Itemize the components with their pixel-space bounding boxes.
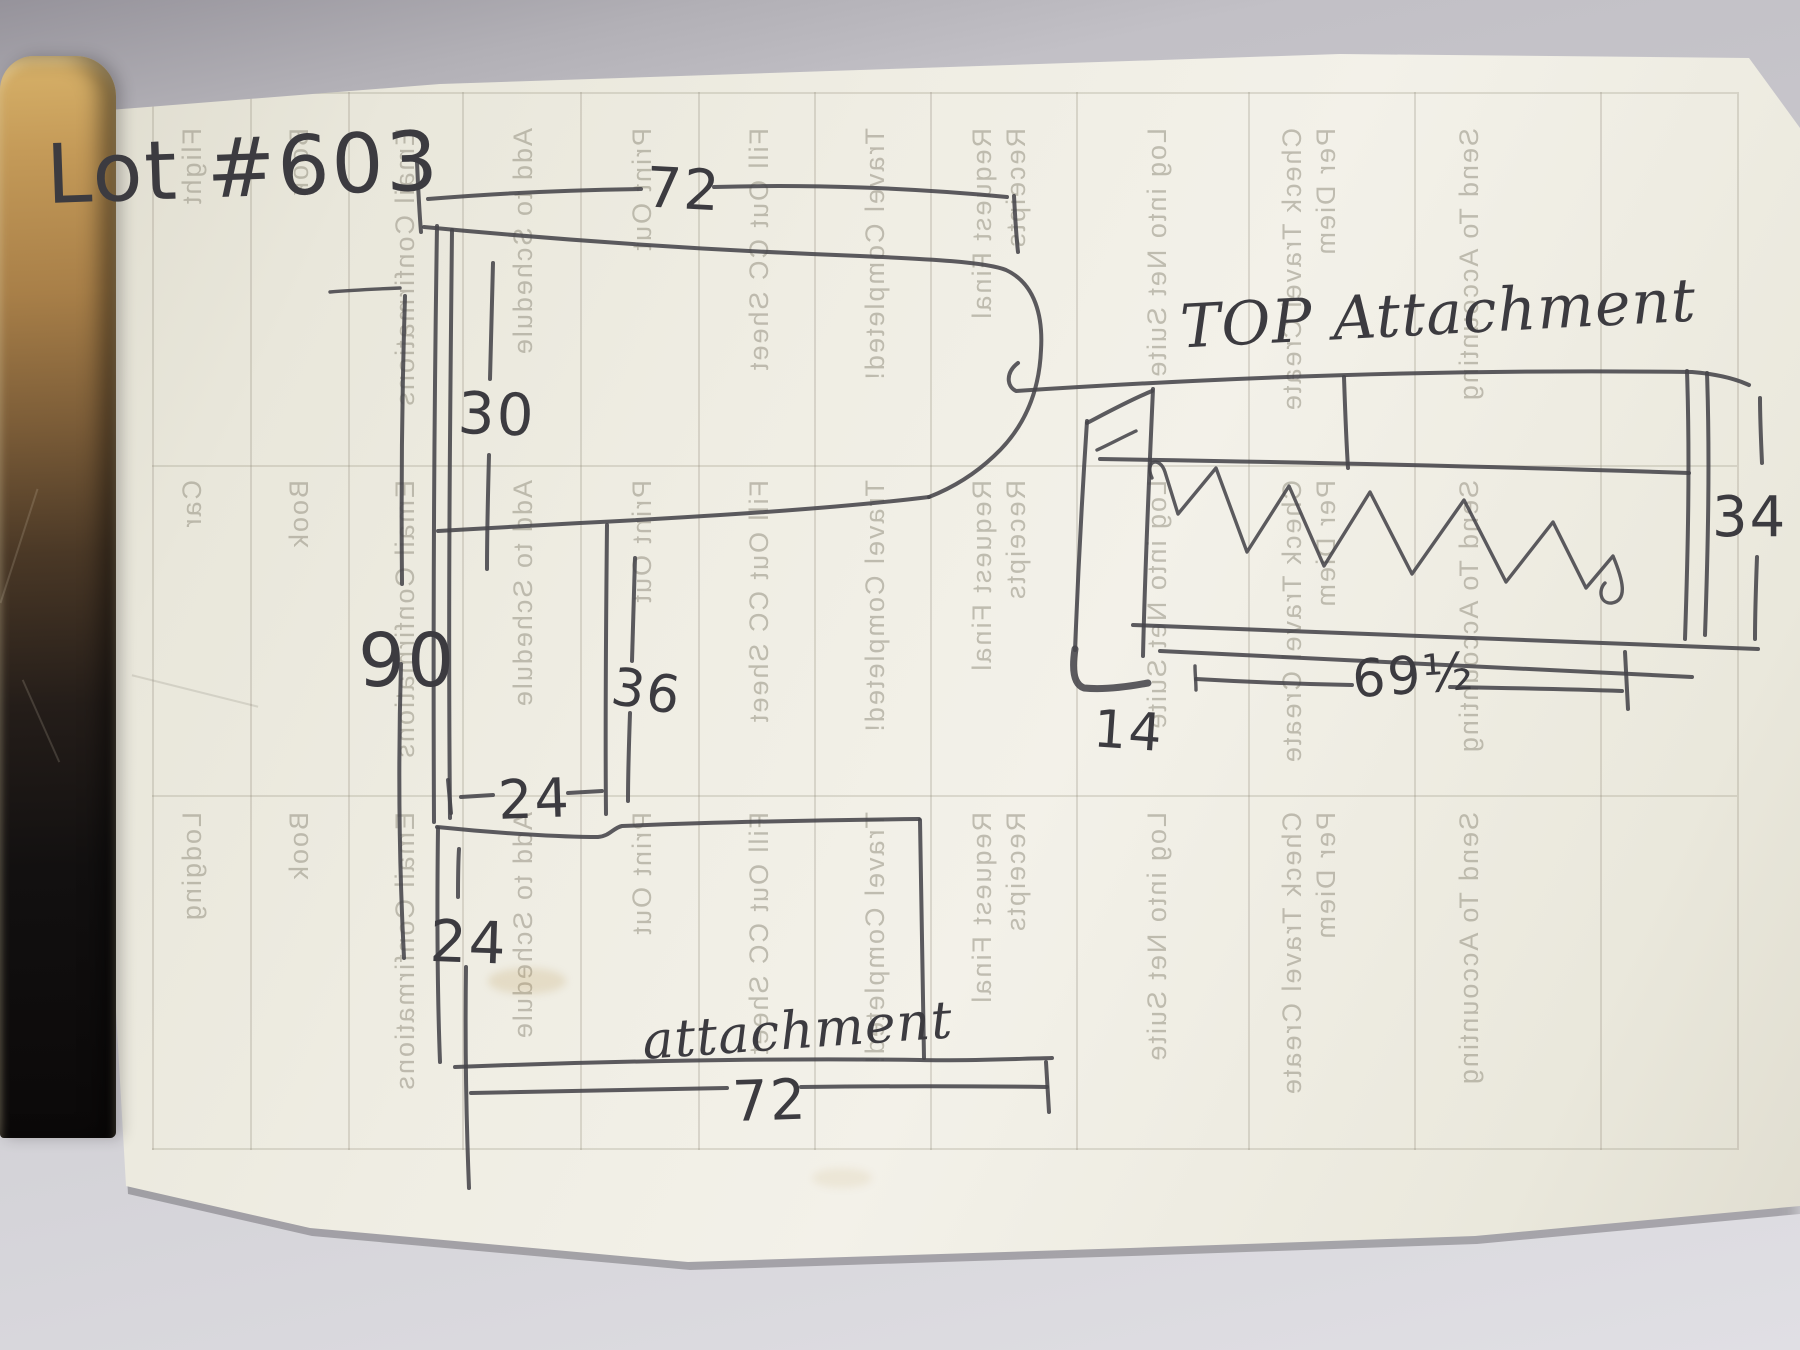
dim-90-top-tick <box>330 288 400 292</box>
band-middle-tick <box>1344 377 1348 468</box>
left-post-inner-diagonal <box>1097 431 1136 450</box>
dim-72-top-line-left <box>428 189 641 199</box>
band-second-line <box>1100 459 1689 473</box>
dim-30-line-lower <box>487 455 489 569</box>
top-attachment-title: TOP Attachment <box>1179 266 1698 363</box>
dim-24h-tick-lower <box>466 967 469 1188</box>
dim-24-height-label: 24 <box>429 907 509 978</box>
dim-36-label: 36 <box>607 657 686 727</box>
dim-69half-label: 69½ <box>1350 642 1476 710</box>
dim-72-top-line-right <box>714 186 1007 197</box>
hand-drawn-sketch: Lot #603 72 30 90 36 24 24 attachment 72… <box>0 0 1800 1350</box>
left-post-outer <box>1075 421 1087 650</box>
band-top-edge <box>1009 363 1749 391</box>
upper-shape-top-and-nose <box>424 227 1041 497</box>
dim-72-top-right-tick <box>1014 196 1018 252</box>
dim-90-line-upper <box>402 296 405 584</box>
dim-24w-dash-right <box>568 791 602 793</box>
dim-24-width-label: 24 <box>497 766 572 831</box>
dim-34-label: 34 <box>1712 485 1787 550</box>
dim-69-line-left <box>1196 679 1352 685</box>
dim-30-label: 30 <box>457 379 537 450</box>
foot-bracket <box>1074 649 1148 689</box>
dim-36-line-upper <box>632 558 635 661</box>
dim-14-label: 14 <box>1091 699 1165 764</box>
shape-left-edge-inner <box>449 230 452 818</box>
dim-72-bottom-line-right <box>801 1086 1047 1087</box>
upper-shape-bottom-edge <box>438 497 929 531</box>
right-post-outer <box>1685 371 1688 639</box>
dim-72-top-label: 72 <box>644 155 723 224</box>
lot-number-label: Lot #603 <box>44 114 441 223</box>
dim-24w-dash-left <box>461 795 493 797</box>
middle-section-right-edge <box>606 525 607 814</box>
photo-scene: Flight Book Email Confirmations Add to S… <box>0 0 1800 1350</box>
right-post-inner <box>1705 373 1708 635</box>
dim-24h-tick-upper <box>458 849 459 897</box>
dim-90-line-lower <box>399 664 404 958</box>
shading-zigzag <box>1150 462 1623 603</box>
dim-30-line-upper <box>490 263 493 379</box>
dim-34-line-lower <box>1755 557 1757 639</box>
dim-72-bottom-right-tick <box>1046 1062 1049 1112</box>
dim-90-label: 90 <box>358 618 456 704</box>
left-post-top-diagonal <box>1087 391 1152 423</box>
left-post-inner <box>1143 389 1153 656</box>
dim-36-line-lower <box>628 713 630 801</box>
dim-69-right-tick <box>1625 652 1628 709</box>
shape-left-edge-outer <box>434 226 437 822</box>
dim-34-line-upper <box>1760 398 1762 463</box>
dim-72-bottom-line-left <box>471 1088 727 1093</box>
dim-72-bottom-label: 72 <box>731 1067 808 1135</box>
